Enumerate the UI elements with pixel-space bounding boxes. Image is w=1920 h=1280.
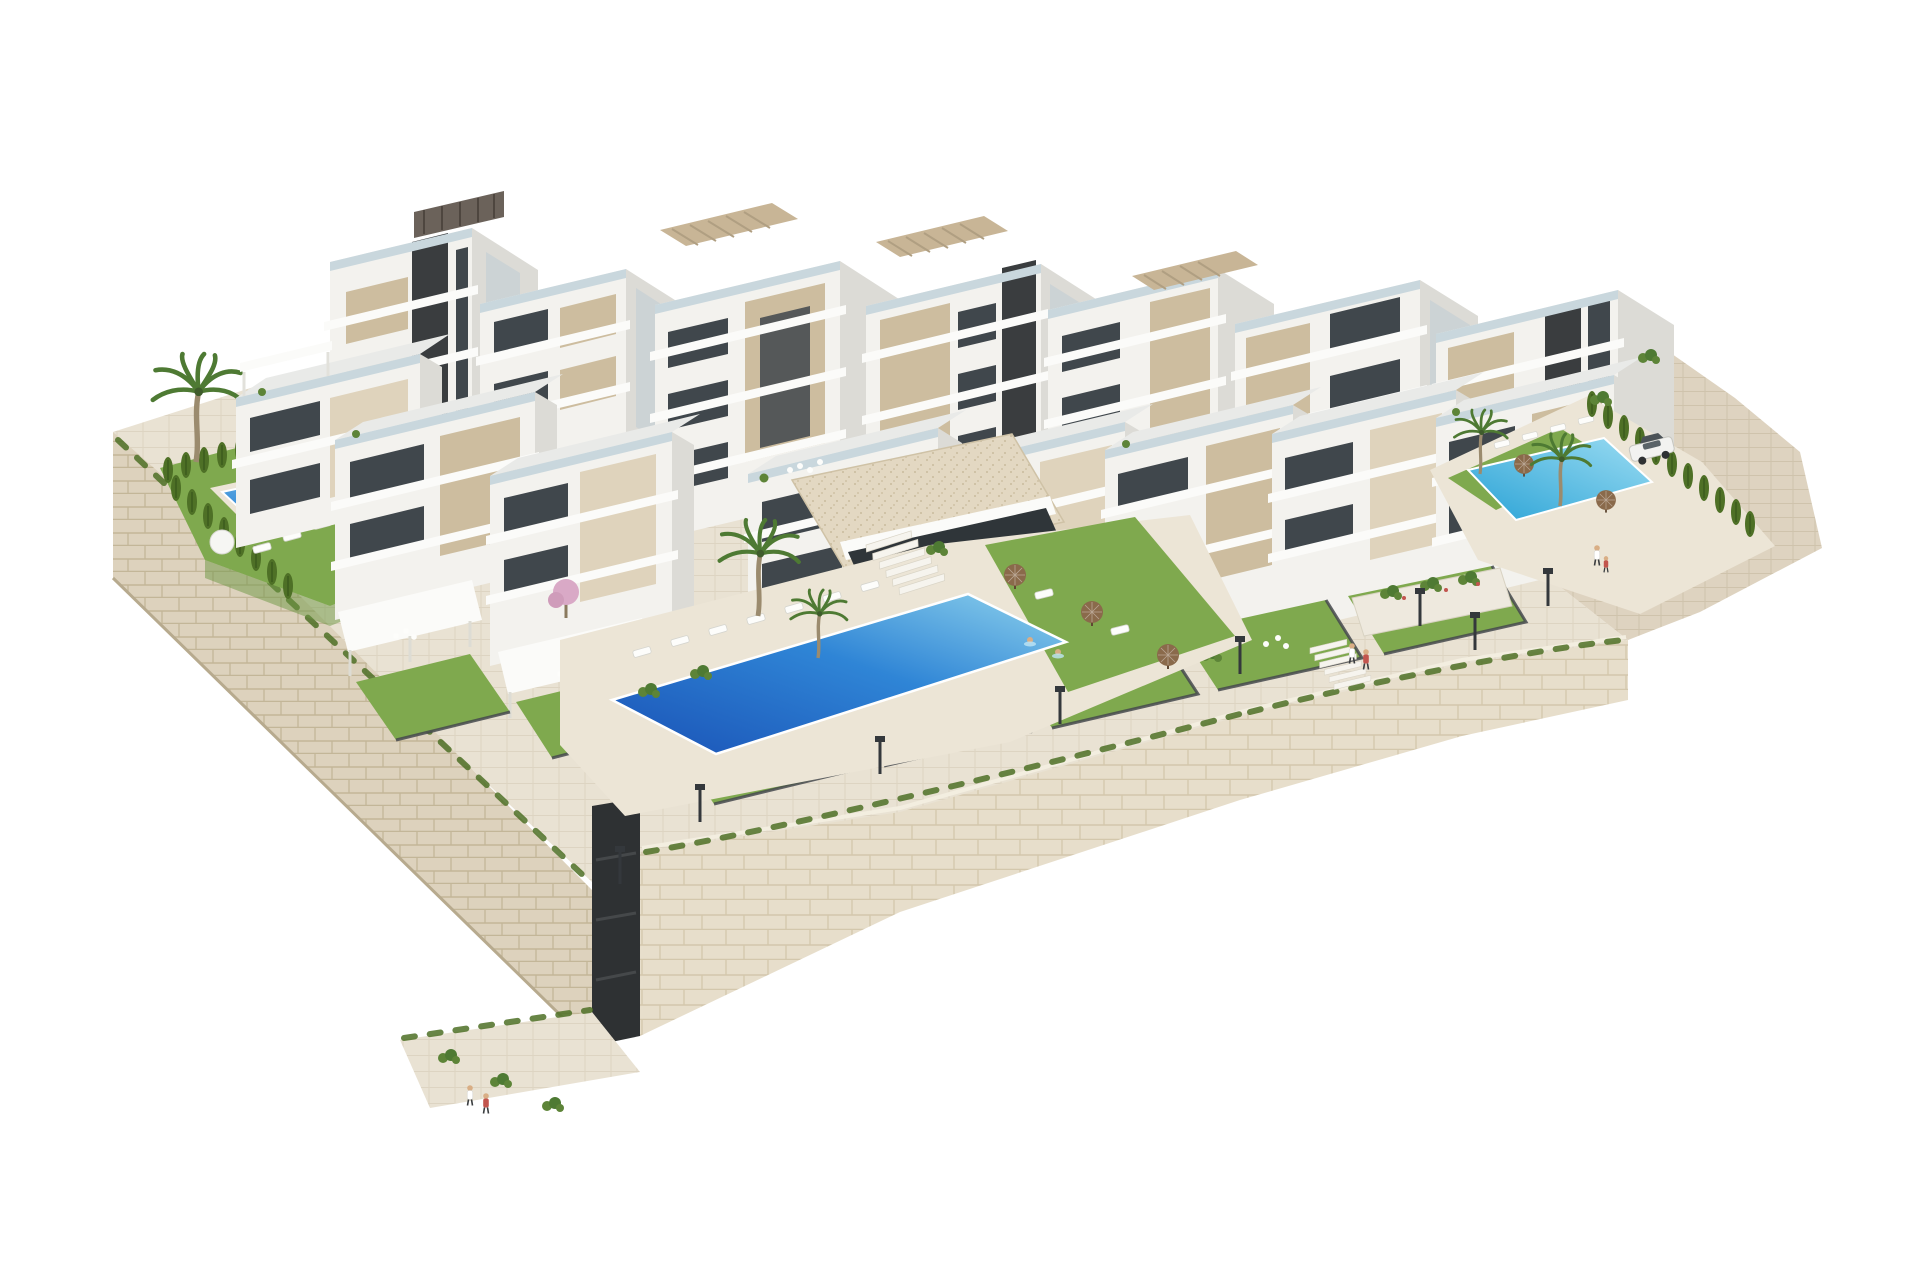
- roof-pergola: [876, 216, 1008, 257]
- architectural-render-canvas: [0, 0, 1920, 1280]
- roof-pergola: [414, 191, 504, 238]
- site-render: [0, 0, 1920, 1280]
- person: [467, 1085, 473, 1105]
- person: [483, 1093, 489, 1113]
- roof-pergola: [660, 203, 798, 246]
- terrace-plant: [760, 474, 769, 483]
- terrace-plant: [1122, 440, 1130, 448]
- terrace-plant: [352, 430, 360, 438]
- garage-entrance: [592, 798, 640, 1046]
- white-parasol: [210, 530, 234, 554]
- terrace-plant: [258, 388, 266, 396]
- terrace-plant: [1452, 408, 1460, 416]
